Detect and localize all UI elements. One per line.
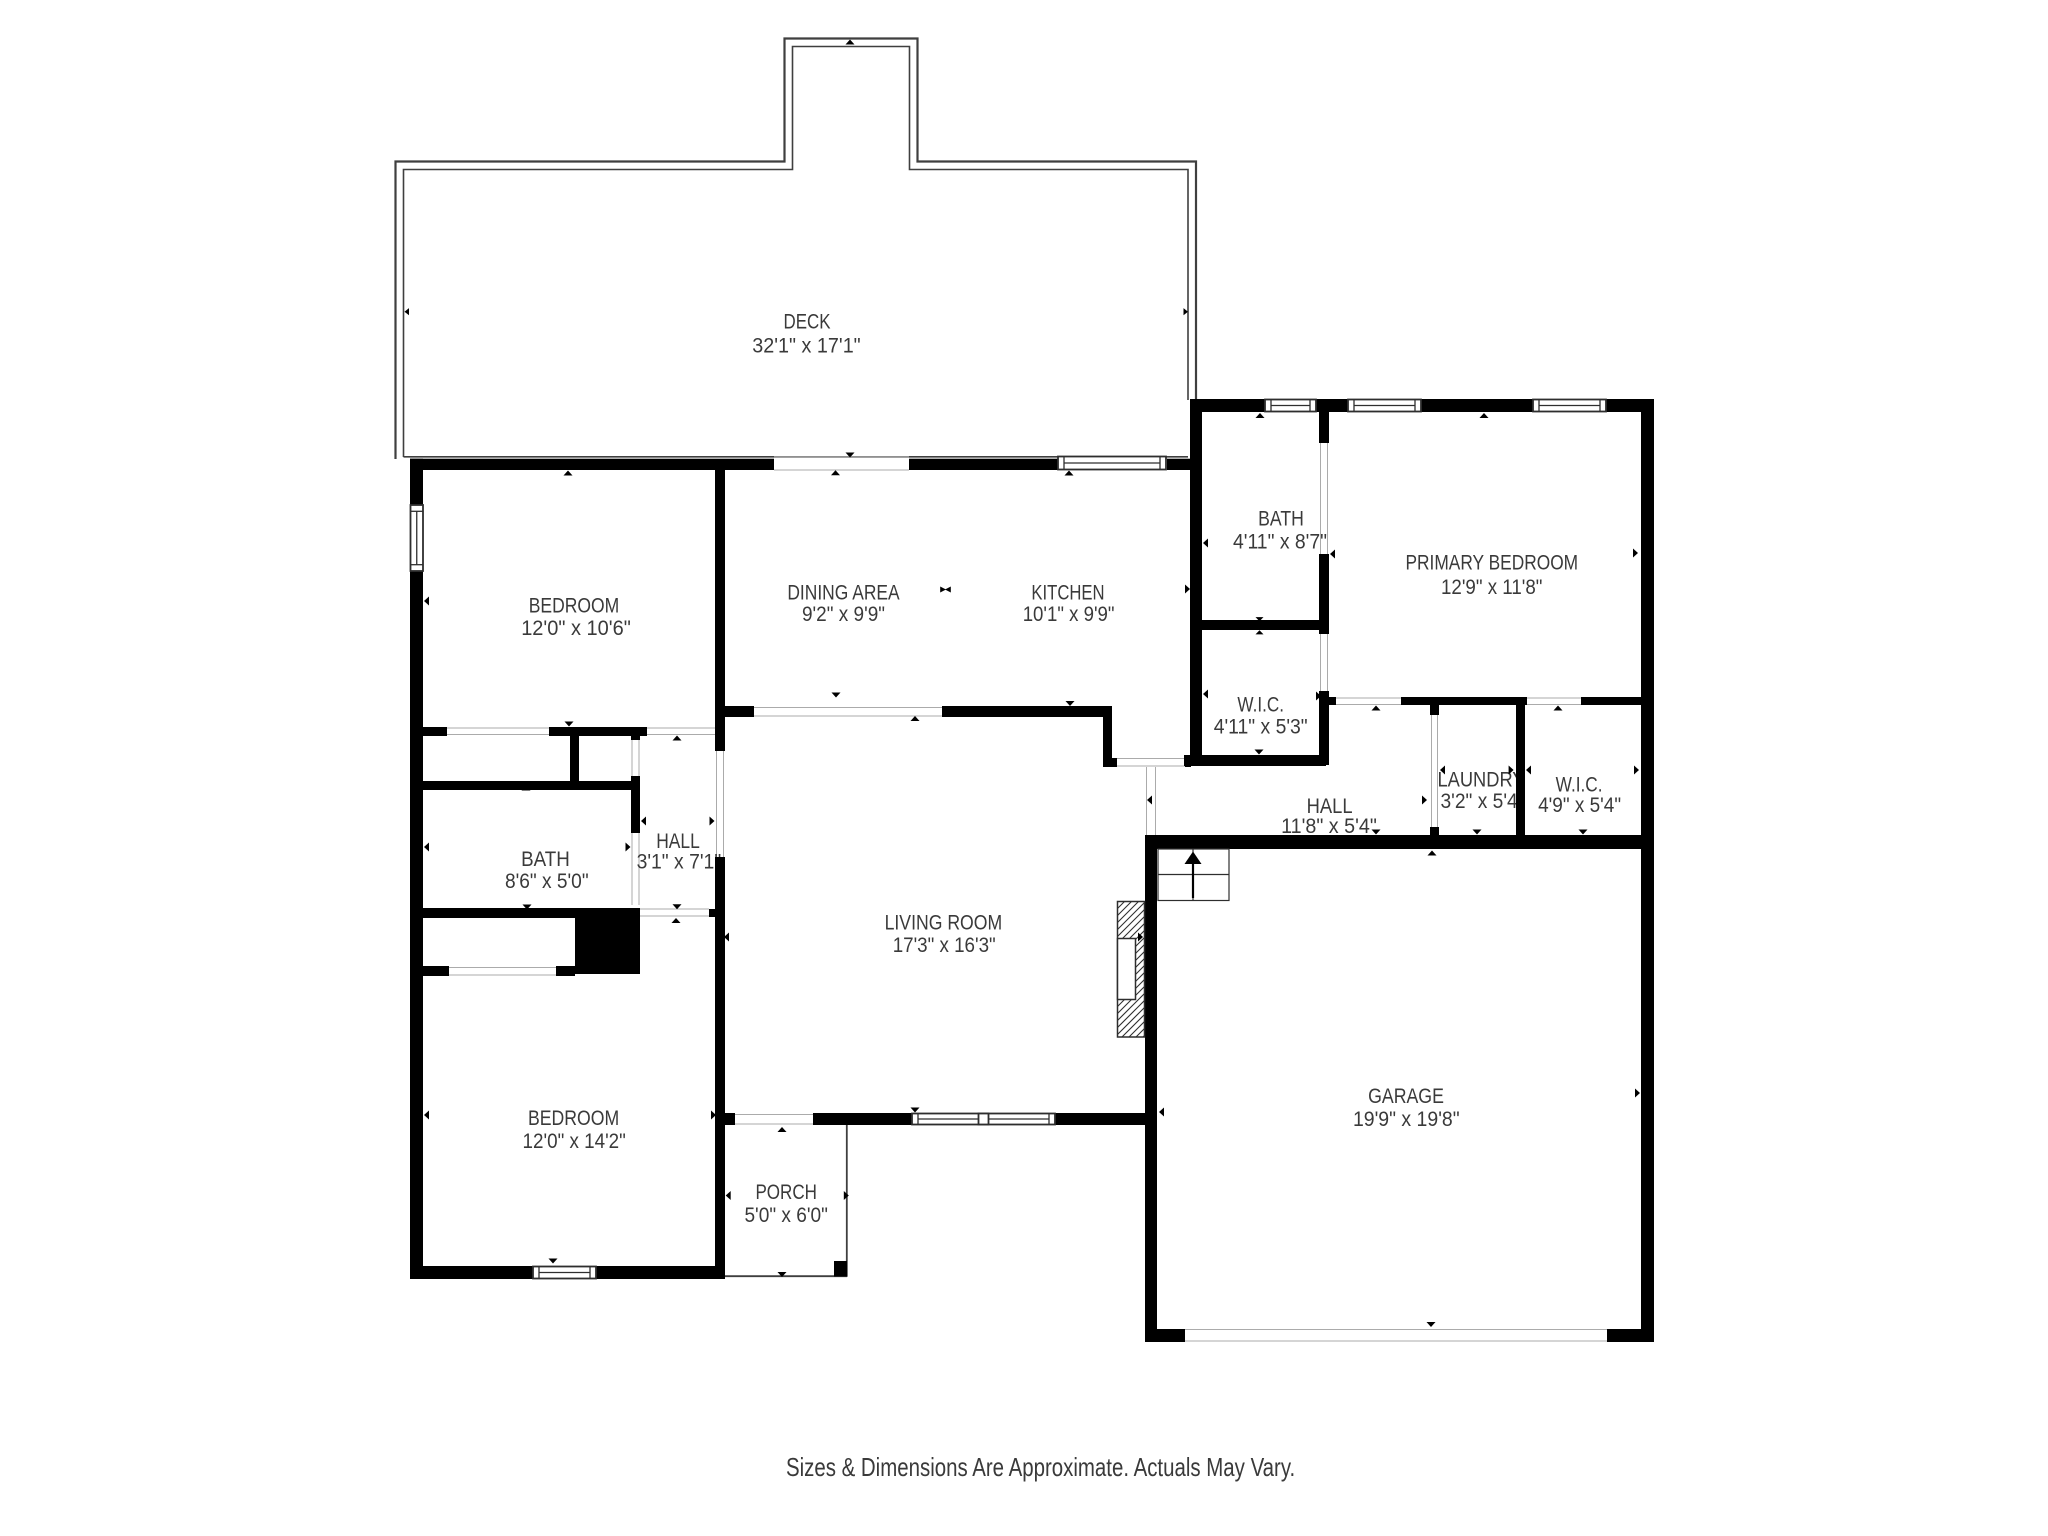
svg-text:17'3" x 16'3": 17'3" x 16'3" (893, 934, 996, 957)
svg-text:BATH: BATH (1258, 507, 1304, 530)
svg-text:Sizes & Dimensions Are Approxi: Sizes & Dimensions Are Approximate. Actu… (786, 1452, 1295, 1482)
svg-text:3'2" x 5'4": 3'2" x 5'4" (1441, 790, 1525, 813)
svg-text:LAUNDRY: LAUNDRY (1438, 769, 1525, 792)
svg-text:BATH: BATH (521, 848, 570, 871)
svg-text:BEDROOM: BEDROOM (528, 1107, 619, 1130)
svg-text:5'0" x 6'0": 5'0" x 6'0" (744, 1204, 828, 1227)
svg-text:12'0" x 14'2": 12'0" x 14'2" (523, 1130, 626, 1153)
svg-text:LIVING ROOM: LIVING ROOM (885, 911, 1003, 934)
svg-text:10'1" x 9'9": 10'1" x 9'9" (1023, 603, 1115, 626)
svg-text:PORCH: PORCH (755, 1181, 817, 1204)
svg-text:4'11" x 8'7": 4'11" x 8'7" (1233, 530, 1327, 553)
svg-text:11'8" x 5'4": 11'8" x 5'4" (1281, 815, 1377, 838)
svg-text:GARAGE: GARAGE (1368, 1085, 1444, 1108)
svg-text:8'6" x 5'0": 8'6" x 5'0" (505, 870, 589, 893)
svg-text:4'9" x 5'4": 4'9" x 5'4" (1538, 794, 1621, 817)
svg-text:9'2" x 9'9": 9'2" x 9'9" (802, 603, 885, 626)
svg-text:PRIMARY BEDROOM: PRIMARY BEDROOM (1406, 552, 1579, 575)
svg-text:32'1" x 17'1": 32'1" x 17'1" (752, 335, 860, 358)
svg-text:12'0" x 10'6": 12'0" x 10'6" (521, 617, 631, 640)
svg-text:W.I.C.: W.I.C. (1237, 694, 1284, 717)
svg-text:DINING AREA: DINING AREA (787, 581, 899, 604)
svg-text:DECK: DECK (784, 311, 831, 334)
svg-text:KITCHEN: KITCHEN (1031, 581, 1104, 604)
svg-text:4'11" x 5'3": 4'11" x 5'3" (1214, 716, 1308, 739)
svg-text:3'1" x 7'1": 3'1" x 7'1" (637, 851, 722, 874)
svg-text:12'9" x 11'8": 12'9" x 11'8" (1441, 576, 1542, 599)
svg-text:19'9" x 19'8": 19'9" x 19'8" (1353, 1108, 1460, 1131)
svg-text:BEDROOM: BEDROOM (529, 595, 620, 618)
